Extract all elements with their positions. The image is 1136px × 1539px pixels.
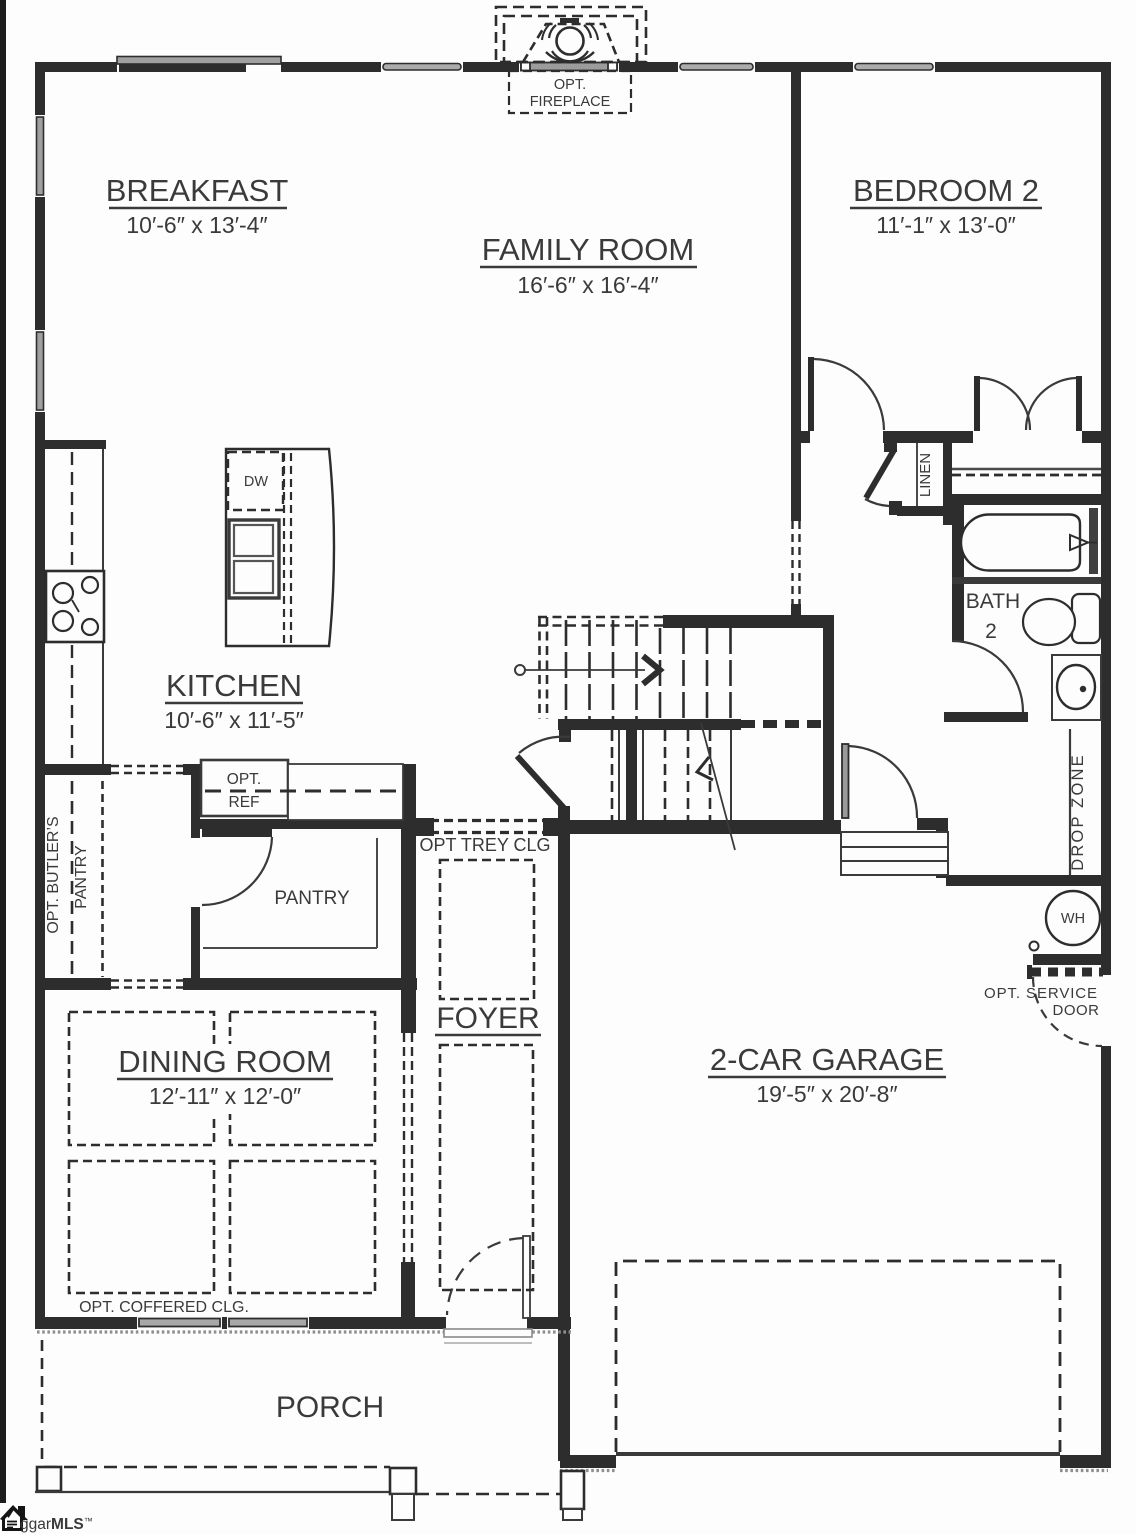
svg-text:LINEN: LINEN (917, 453, 934, 497)
svg-text:DW: DW (244, 474, 268, 490)
svg-text:OPT.: OPT. (227, 771, 261, 788)
svg-text:KITCHEN: KITCHEN (166, 668, 302, 703)
svg-text:FIREPLACE: FIREPLACE (530, 94, 611, 110)
svg-text:10′-6″ x 13′-4″: 10′-6″ x 13′-4″ (126, 212, 267, 238)
svg-text:2-CAR GARAGE: 2-CAR GARAGE (710, 1042, 944, 1077)
svg-text:DINING ROOM: DINING ROOM (118, 1044, 332, 1079)
svg-text:11′-1″ x 13′-0″: 11′-1″ x 13′-0″ (876, 212, 1016, 238)
svg-text:PANTRY: PANTRY (73, 845, 90, 909)
svg-text:PANTRY: PANTRY (274, 888, 350, 909)
svg-text:12′-11″ x 12′-0″: 12′-11″ x 12′-0″ (149, 1083, 301, 1109)
svg-text:PORCH: PORCH (276, 1391, 384, 1424)
svg-text:BATH: BATH (966, 590, 1020, 613)
svg-text:DOOR: DOOR (1053, 1002, 1100, 1019)
svg-text:BREAKFAST: BREAKFAST (106, 173, 289, 208)
svg-text:FOYER: FOYER (436, 1002, 539, 1035)
svg-text:19′-5″ x 20′-8″: 19′-5″ x 20′-8″ (756, 1081, 897, 1107)
svg-text:10′-6″ x 11′-5″: 10′-6″ x 11′-5″ (164, 707, 304, 733)
svg-text:OPT.: OPT. (554, 77, 586, 93)
svg-text:DROP ZONE: DROP ZONE (1069, 753, 1087, 871)
svg-text:ggarMLS™: ggarMLS™ (20, 1516, 93, 1533)
svg-text:OPT. SERVICE: OPT. SERVICE (984, 985, 1098, 1002)
svg-text:WH: WH (1061, 911, 1085, 927)
svg-text:16′-6″ x 16′-4″: 16′-6″ x 16′-4″ (517, 272, 658, 298)
svg-text:OPT TREY CLG: OPT TREY CLG (419, 835, 550, 855)
svg-text:REF: REF (229, 794, 260, 811)
svg-text:2: 2 (985, 620, 997, 643)
svg-text:FAMILY ROOM: FAMILY ROOM (482, 232, 694, 267)
svg-text:OPT. BUTLER’S: OPT. BUTLER’S (45, 816, 62, 933)
svg-text:OPT. COFFERED CLG.: OPT. COFFERED CLG. (79, 1299, 249, 1316)
svg-text:BEDROOM 2: BEDROOM 2 (853, 173, 1039, 208)
